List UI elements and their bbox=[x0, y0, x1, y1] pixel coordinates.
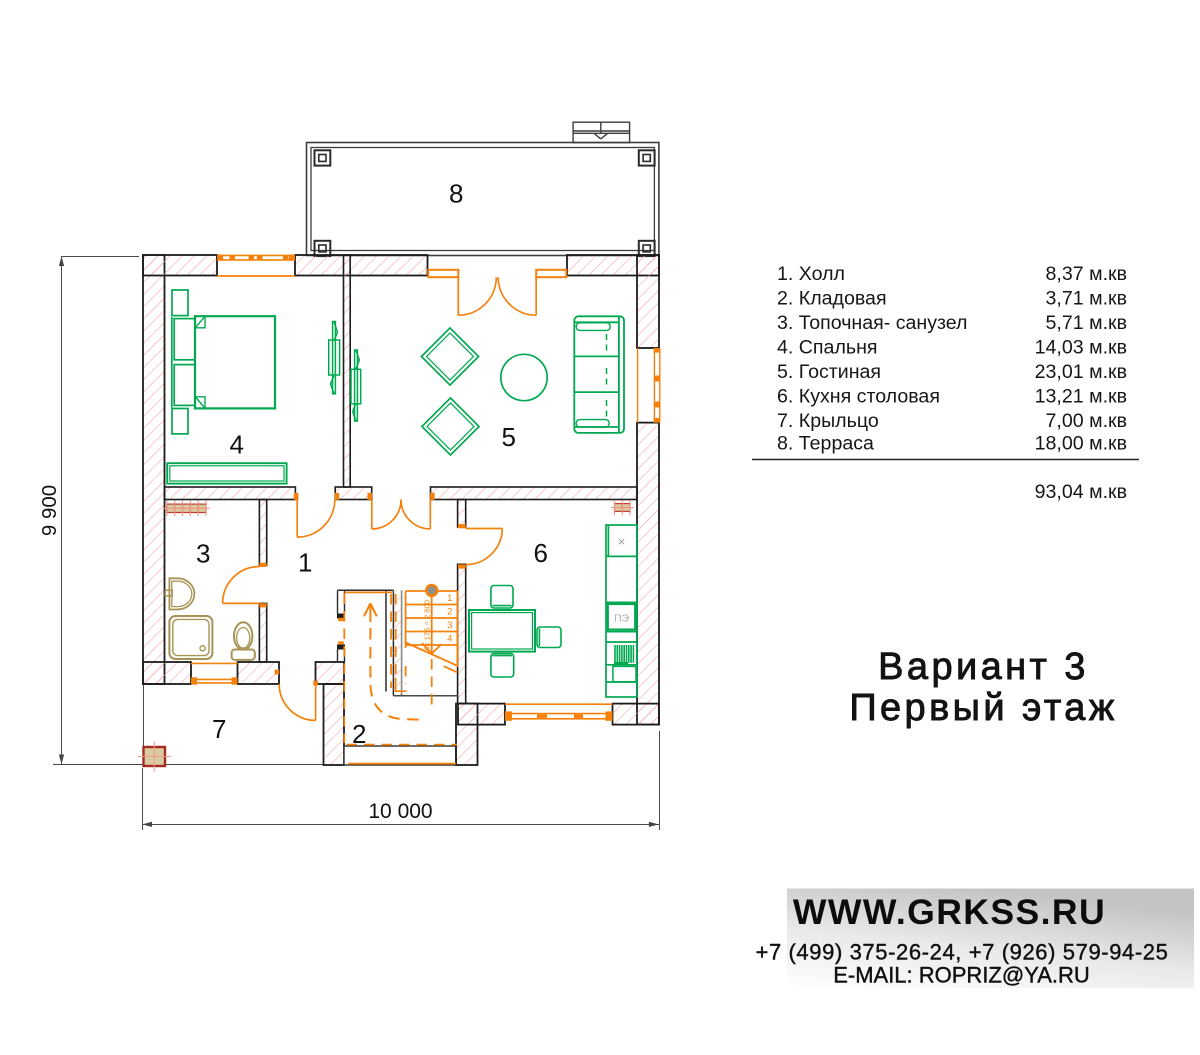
svg-text:Вариант 3: Вариант 3 bbox=[878, 646, 1089, 688]
svg-text:6. Кухня столовая: 6. Кухня столовая bbox=[777, 386, 940, 408]
svg-text:E-MAIL: ROPRIZ@YA.RU: E-MAIL: ROPRIZ@YA.RU bbox=[833, 963, 1090, 988]
svg-text:5. Гостиная: 5. Гостиная bbox=[777, 361, 881, 383]
svg-text:6х 175 = 2 800: 6х 175 = 2 800 bbox=[423, 600, 432, 650]
svg-text:3,71 м.кв: 3,71 м.кв bbox=[1046, 288, 1127, 310]
svg-text:9 900: 9 900 bbox=[38, 485, 61, 536]
svg-text:7. Крыльцо: 7. Крыльцо bbox=[777, 410, 879, 432]
svg-text:10 000: 10 000 bbox=[368, 800, 432, 823]
svg-text:Первый этаж: Первый этаж bbox=[849, 687, 1117, 729]
svg-text:WWW.GRKSS.RU: WWW.GRKSS.RU bbox=[793, 892, 1106, 932]
svg-text:23,01 м.кв: 23,01 м.кв bbox=[1035, 361, 1127, 383]
svg-text:7: 7 bbox=[212, 714, 226, 744]
svg-text:7,00 м.кв: 7,00 м.кв bbox=[1046, 410, 1127, 432]
svg-text:8: 8 bbox=[449, 179, 463, 209]
svg-text:18,00 м.кв: 18,00 м.кв bbox=[1035, 433, 1127, 455]
svg-text:4. Спальня: 4. Спальня bbox=[777, 337, 878, 359]
svg-text:14,03 м.кв: 14,03 м.кв bbox=[1035, 337, 1127, 359]
svg-text:3. Топочная- санузел: 3. Топочная- санузел bbox=[777, 312, 967, 334]
svg-text:1: 1 bbox=[298, 548, 312, 578]
svg-text:2: 2 bbox=[352, 719, 366, 749]
svg-text:3: 3 bbox=[196, 539, 210, 569]
svg-text:4: 4 bbox=[230, 430, 244, 460]
svg-text:13,21 м.кв: 13,21 м.кв bbox=[1035, 386, 1127, 408]
svg-text:93,04 м.кв: 93,04 м.кв bbox=[1035, 481, 1127, 503]
svg-text:1. Холл: 1. Холл bbox=[777, 263, 845, 285]
svg-text:3: 3 bbox=[447, 620, 452, 631]
svg-text:8,37 м.кв: 8,37 м.кв bbox=[1046, 263, 1127, 285]
svg-text:ПЭ: ПЭ bbox=[614, 613, 630, 625]
svg-text:+7 (499) 375-26-24, +7 (926) 5: +7 (499) 375-26-24, +7 (926) 579-94-25 bbox=[756, 940, 1169, 965]
svg-text:1: 1 bbox=[447, 593, 452, 604]
svg-text:2. Кладовая: 2. Кладовая bbox=[777, 288, 887, 310]
svg-text:8. Терраса: 8. Терраса bbox=[777, 433, 874, 455]
svg-text:2: 2 bbox=[447, 607, 452, 618]
svg-text:×: × bbox=[618, 534, 626, 549]
svg-text:5: 5 bbox=[502, 422, 516, 452]
svg-text:6: 6 bbox=[534, 538, 548, 568]
svg-text:5,71 м.кв: 5,71 м.кв bbox=[1046, 312, 1127, 334]
svg-text:4: 4 bbox=[447, 634, 452, 645]
